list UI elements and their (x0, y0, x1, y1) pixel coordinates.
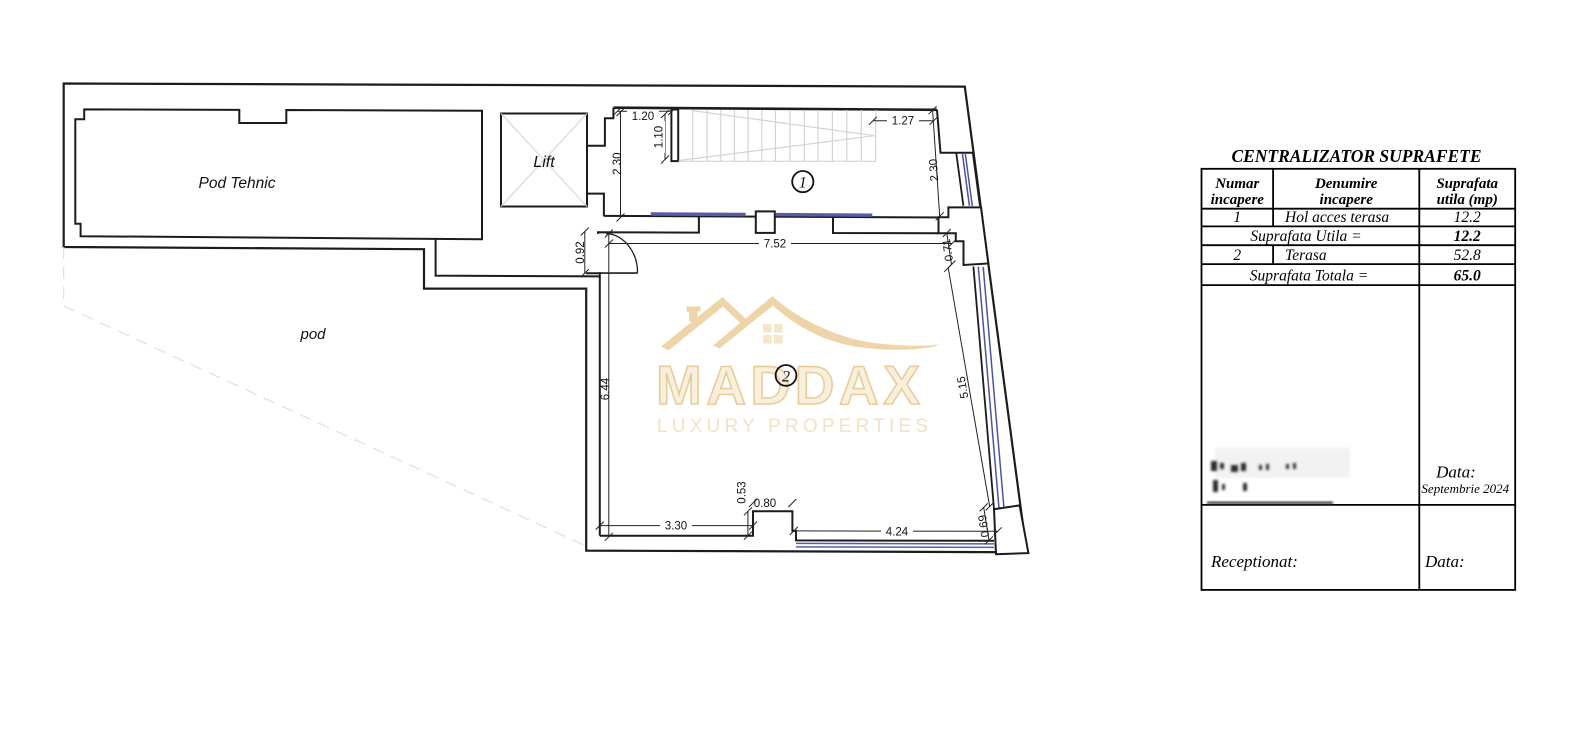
svg-text:CENTRALIZATOR SUPRAFETE: CENTRALIZATOR SUPRAFETE (1231, 146, 1481, 166)
svg-text:Terasa: Terasa (1285, 247, 1327, 264)
svg-text:2.30: 2.30 (928, 158, 942, 181)
svg-text:12.2: 12.2 (1454, 209, 1481, 226)
svg-text:2: 2 (782, 368, 790, 385)
svg-text:7.52: 7.52 (764, 239, 786, 251)
svg-text:Denumire: Denumire (1314, 176, 1378, 192)
svg-text:Hol acces terasa: Hol acces terasa (1284, 209, 1389, 226)
svg-text:1: 1 (1233, 209, 1241, 226)
svg-text:2.30: 2.30 (612, 153, 624, 175)
svg-text:3.30: 3.30 (665, 521, 687, 533)
svg-text:65.0: 65.0 (1454, 268, 1481, 285)
svg-text:0.80: 0.80 (754, 498, 776, 510)
svg-text:5.15: 5.15 (956, 375, 972, 399)
svg-text:incapere: incapere (1211, 192, 1265, 208)
svg-text:1: 1 (799, 175, 807, 192)
svg-text:Data:: Data: (1435, 463, 1476, 482)
svg-text:incapere: incapere (1320, 192, 1374, 208)
svg-text:2: 2 (1233, 247, 1241, 264)
svg-text:1.27: 1.27 (892, 116, 914, 128)
svg-text:1.10: 1.10 (654, 126, 666, 148)
svg-text:Data:: Data: (1424, 552, 1465, 571)
svg-text:0.53: 0.53 (737, 481, 749, 503)
svg-text:0.69: 0.69 (977, 514, 992, 538)
svg-text:Lift: Lift (533, 154, 555, 171)
svg-text:utila (mp): utila (mp) (1437, 192, 1498, 208)
svg-text:Suprafata Utila =: Suprafata Utila = (1250, 228, 1361, 245)
svg-text:Septembrie 2024: Septembrie 2024 (1421, 481, 1509, 496)
svg-text:0.92: 0.92 (575, 241, 587, 263)
svg-text:52.8: 52.8 (1454, 247, 1481, 264)
svg-text:4.24: 4.24 (886, 526, 909, 538)
svg-text:12.2: 12.2 (1454, 228, 1481, 245)
svg-text:Suprafata: Suprafata (1436, 176, 1498, 192)
svg-text:Suprafata Totala =: Suprafata Totala = (1250, 268, 1368, 285)
svg-text:pod: pod (299, 326, 326, 343)
svg-text:Pod Tehnic: Pod Tehnic (199, 175, 276, 192)
svg-text:Numar: Numar (1214, 176, 1259, 192)
svg-text:1.20: 1.20 (632, 111, 654, 123)
svg-text:6.44: 6.44 (600, 377, 612, 400)
svg-text:LUXURY PROPERTIES: LUXURY PROPERTIES (657, 416, 932, 437)
svg-text:Receptionat:: Receptionat: (1210, 552, 1298, 571)
